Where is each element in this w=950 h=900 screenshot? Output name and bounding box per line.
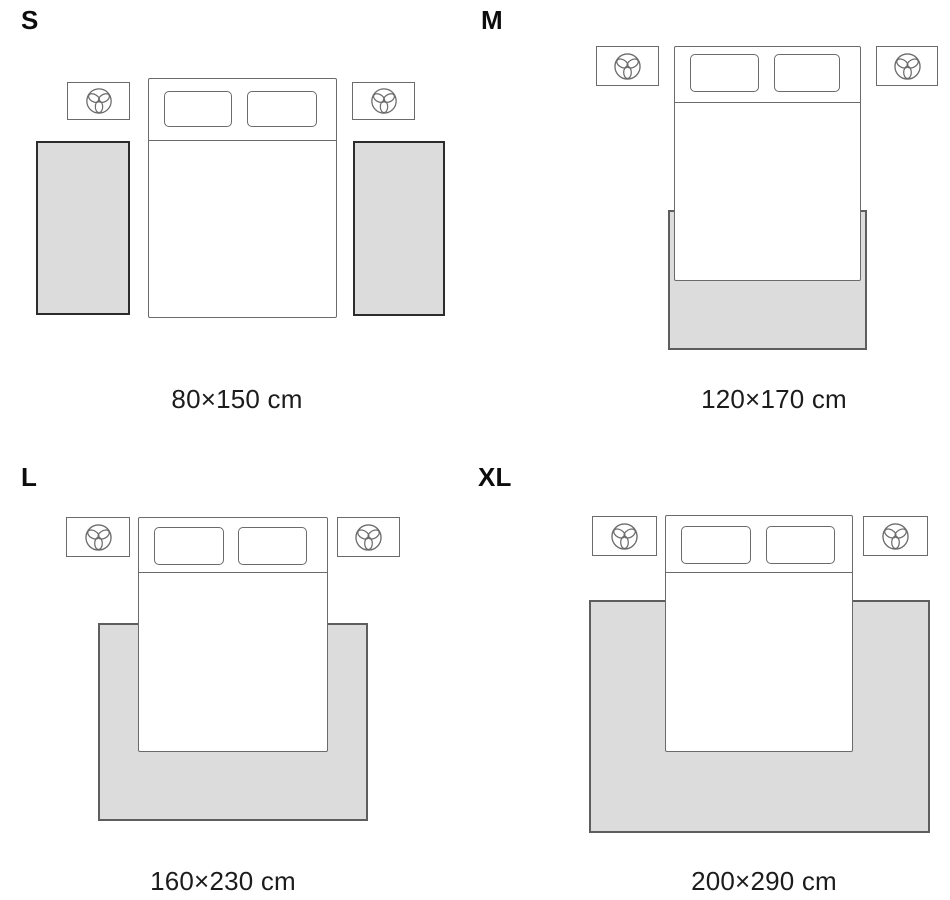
flower-icon — [891, 50, 924, 83]
rug-left — [36, 141, 130, 315]
size-caption-s: 80×150 cm — [117, 386, 357, 412]
bed-headboard — [149, 79, 336, 141]
bed — [148, 78, 337, 318]
rug-under-bed — [98, 623, 368, 821]
bed-headboard — [666, 516, 852, 573]
rug-size-guide: S 80×150 cm — [0, 0, 950, 900]
size-label-m: M — [481, 7, 503, 33]
size-option-m: M 120×170 cm — [0, 0, 950, 900]
pillow-right — [766, 526, 835, 564]
bed — [674, 46, 861, 281]
pillow-right — [774, 54, 840, 92]
flower-icon — [368, 85, 400, 117]
size-caption-l: 160×230 cm — [103, 868, 343, 894]
pillow-left — [690, 54, 759, 92]
pillow-right — [238, 527, 307, 565]
rug-under-bed — [668, 210, 867, 350]
pillow-left — [681, 526, 751, 564]
nightstand-right — [337, 517, 400, 557]
flower-icon — [608, 520, 641, 553]
nightstand-right — [863, 516, 928, 556]
flower-icon — [611, 50, 644, 83]
size-caption-xl: 200×290 cm — [644, 868, 884, 894]
size-label-s: S — [21, 7, 39, 33]
nightstand-left — [67, 82, 130, 120]
bed-headboard — [675, 47, 860, 103]
nightstand-right — [352, 82, 415, 120]
size-option-xl: XL 200×290 cm — [0, 0, 950, 900]
flower-icon — [879, 520, 912, 553]
bed — [665, 515, 853, 752]
nightstand-right — [876, 46, 938, 86]
flower-icon — [82, 521, 115, 554]
rug-under-bed — [589, 600, 930, 833]
size-label-xl: XL — [478, 464, 512, 490]
nightstand-left — [592, 516, 657, 556]
size-caption-m: 120×170 cm — [654, 386, 894, 412]
flower-icon — [352, 521, 385, 554]
size-option-l: L 160×230 cm — [0, 0, 950, 900]
flower-icon — [83, 85, 115, 117]
nightstand-left — [596, 46, 659, 86]
size-label-l: L — [21, 464, 37, 490]
size-option-s: S 80×150 cm — [0, 0, 950, 900]
pillow-left — [154, 527, 224, 565]
bed-headboard — [139, 518, 327, 573]
bed — [138, 517, 328, 752]
pillow-right — [247, 91, 317, 127]
rug-right — [353, 141, 445, 316]
nightstand-left — [66, 517, 130, 557]
pillow-left — [164, 91, 232, 127]
